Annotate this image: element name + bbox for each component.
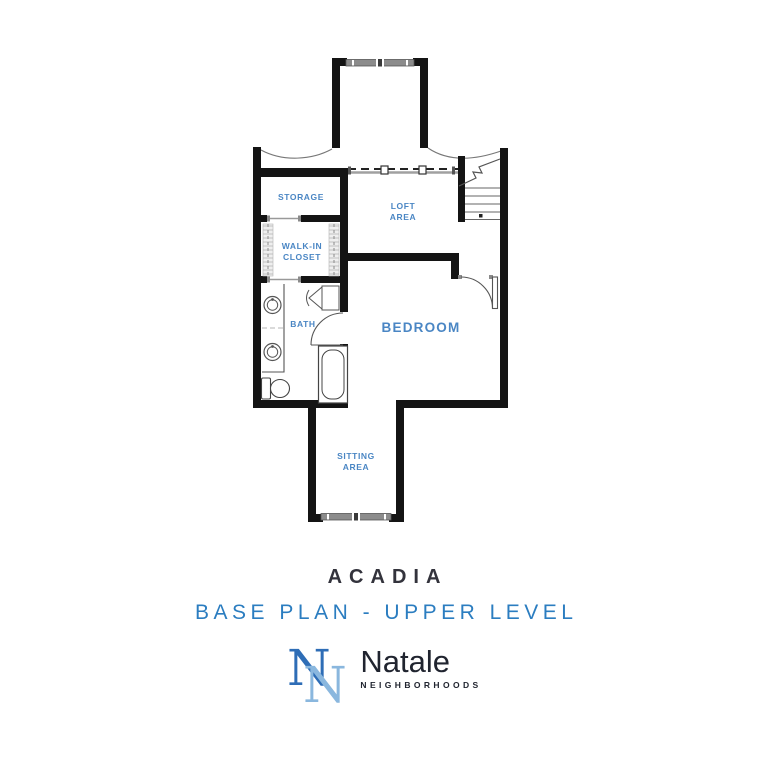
- brand-name: Natale: [360, 646, 481, 677]
- bathtub: [319, 346, 348, 403]
- stairs: [459, 159, 500, 220]
- toilet: [262, 378, 290, 399]
- plan-subtitle: BASE PLAN - UPPER LEVEL: [0, 601, 768, 625]
- bath-label: BATH: [290, 319, 315, 329]
- loft-label-line1: LOFT: [391, 201, 416, 211]
- linen-closet-door: [307, 286, 340, 310]
- vanity-sink-bottom: [264, 344, 281, 361]
- brand-text: Natale NEIGHBORHOODS: [360, 640, 481, 690]
- brand-tagline: NEIGHBORHOODS: [360, 680, 481, 690]
- loft-railing: [348, 166, 458, 175]
- sitting-label-line1: SITTING: [337, 451, 375, 461]
- storage-label: STORAGE: [278, 192, 324, 202]
- bedroom-door: [461, 277, 498, 309]
- dormer-window: [346, 59, 414, 67]
- walk-in-closet-label-line2: CLOSET: [283, 252, 321, 262]
- exterior-walls: [253, 58, 508, 522]
- floor-plan-drawing: STORAGE LOFT AREA WALK-IN CLOSET BATH BE…: [0, 0, 768, 540]
- brand-monogram-icon: N N: [286, 640, 352, 708]
- sitting-label-line2: AREA: [343, 462, 370, 472]
- brand-logo: N N Natale NEIGHBORHOODS: [0, 640, 768, 708]
- vanity-counter: [262, 284, 284, 372]
- sitting-window: [321, 513, 391, 521]
- loft-label-line2: AREA: [390, 212, 417, 222]
- vanity-sink-top: [264, 297, 281, 314]
- plan-name: ACADIA: [0, 566, 768, 589]
- monogram-n-light: N: [303, 656, 347, 714]
- walk-in-closet-label-line1: WALK-IN: [282, 241, 323, 251]
- floor-plan-page: STORAGE LOFT AREA WALK-IN CLOSET BATH BE…: [0, 0, 768, 768]
- bedroom-label: BEDROOM: [382, 320, 461, 335]
- bath-door: [311, 313, 343, 345]
